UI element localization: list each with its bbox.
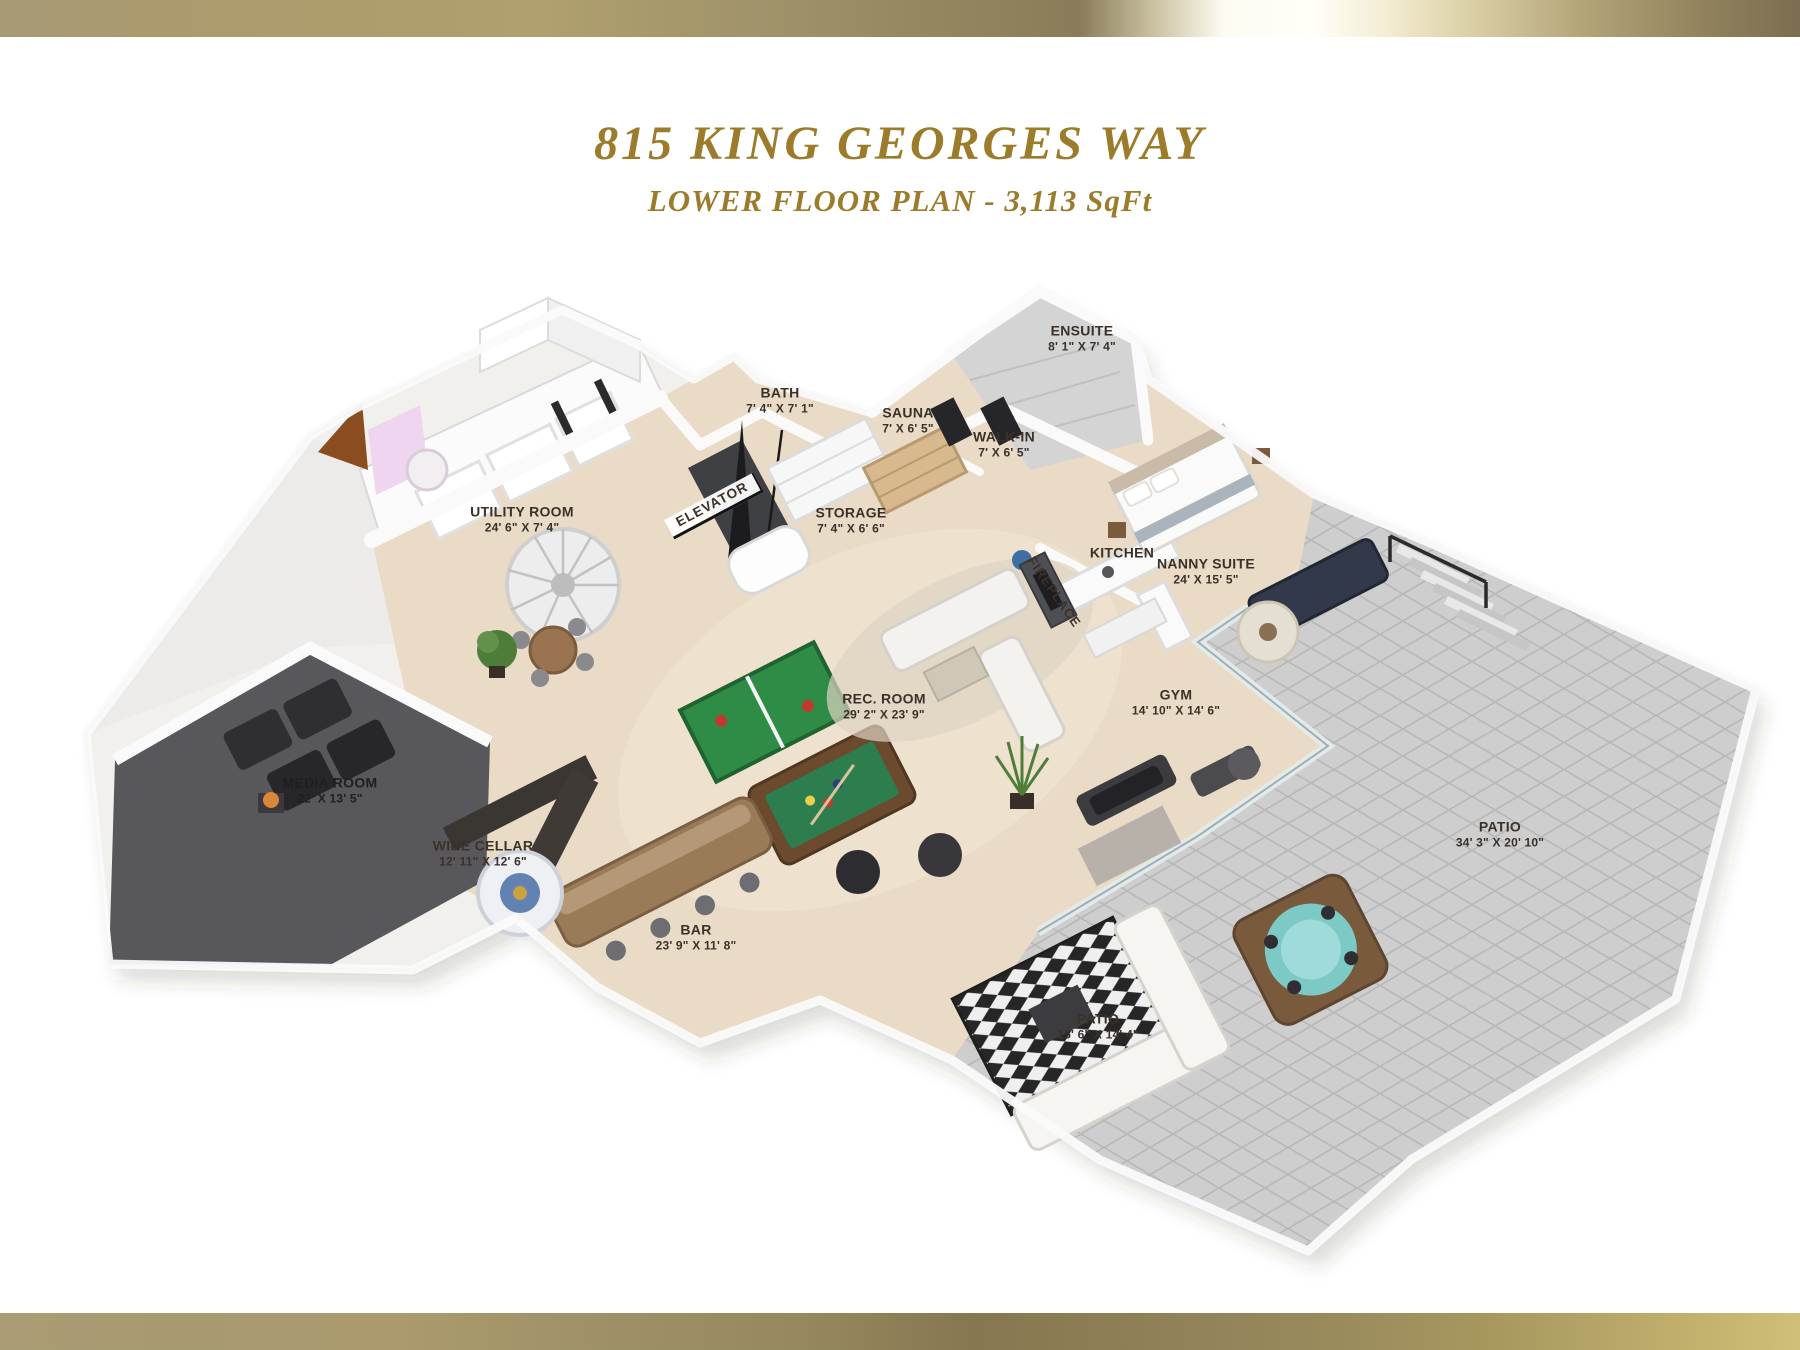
room-name: SAUNA bbox=[882, 404, 933, 420]
room-dims: 29' 2" X 23' 9" bbox=[842, 707, 926, 721]
room-name: PATIO bbox=[1479, 818, 1521, 834]
room-label-bath: BATH 7' 4" X 7' 1" bbox=[746, 384, 814, 415]
room-label-storage: STORAGE 7' 4" X 6' 6" bbox=[815, 504, 886, 535]
room-name: MEDIA ROOM bbox=[282, 774, 377, 790]
exercise-ball bbox=[1228, 748, 1260, 780]
room-label-rec-room: REC. ROOM 29' 2" X 23' 9" bbox=[842, 690, 926, 721]
room-label-patio-main: PATIO 34' 3" X 20' 10" bbox=[1456, 818, 1544, 849]
room-name: UTILITY ROOM bbox=[470, 503, 574, 519]
room-name: WALK-IN bbox=[973, 428, 1035, 444]
room-name: STORAGE bbox=[815, 504, 886, 520]
room-dims: 7' 4" X 7' 1" bbox=[746, 401, 814, 415]
room-name: BATH bbox=[760, 384, 799, 400]
room-name: WINE CELLAR bbox=[433, 837, 534, 853]
room-dims: 7' X 6' 5" bbox=[973, 445, 1035, 459]
room-dims: 24' 6" X 7' 4" bbox=[470, 520, 574, 534]
room-dims: 7' X 6' 5" bbox=[882, 421, 933, 435]
room-dims: 15' 6" X 14' 4" bbox=[1057, 1027, 1138, 1041]
side-table bbox=[1259, 623, 1277, 641]
floor-plan-page: 815 KING GEORGES WAY LOWER FLOOR PLAN - … bbox=[0, 0, 1800, 1350]
room-label-media-room: MEDIA ROOM 22' X 13' 5" bbox=[282, 774, 377, 805]
room-name: GYM bbox=[1160, 686, 1193, 702]
room-dims: 24' X 15' 5" bbox=[1157, 572, 1255, 586]
room-label-ensuite: ENSUITE 8' 1" X 7' 4" bbox=[1048, 322, 1116, 353]
room-label-patio-lower: PATIO 15' 6" X 14' 4" bbox=[1057, 1010, 1138, 1041]
room-dims: 23' 9" X 11' 8" bbox=[656, 938, 737, 952]
room-label-utility-room: UTILITY ROOM 24' 6" X 7' 4" bbox=[470, 503, 574, 534]
room-name: BAR bbox=[680, 921, 711, 937]
nightstand bbox=[1108, 522, 1126, 538]
lounge-chair bbox=[918, 833, 962, 877]
room-name: KITCHEN bbox=[1090, 545, 1154, 561]
room-label-kitchen: KITCHEN bbox=[1090, 545, 1154, 562]
room-label-gym: GYM 14' 10" X 14' 6" bbox=[1132, 686, 1220, 717]
room-label-walk-in: WALK-IN 7' X 6' 5" bbox=[973, 428, 1035, 459]
room-dims: 7' 4" X 6' 6" bbox=[815, 521, 886, 535]
room-label-sauna: SAUNA 7' X 6' 5" bbox=[882, 404, 933, 435]
room-name: REC. ROOM bbox=[842, 690, 926, 706]
room-name: PATIO bbox=[1077, 1010, 1119, 1026]
room-dims: 34' 3" X 20' 10" bbox=[1456, 835, 1544, 849]
room-label-wine-cellar: WINE CELLAR 12' 11" X 12' 6" bbox=[433, 837, 534, 868]
floor-plan-illustration bbox=[0, 0, 1800, 1350]
room-label-bar: BAR 23' 9" X 11' 8" bbox=[656, 921, 737, 952]
spiral-staircase bbox=[507, 529, 619, 641]
fire-table bbox=[258, 792, 284, 813]
room-dims: 14' 10" X 14' 6" bbox=[1132, 703, 1220, 717]
room-label-nanny-suite: NANNY SUITE 24' X 15' 5" bbox=[1157, 555, 1255, 586]
room-name: ENSUITE bbox=[1051, 322, 1114, 338]
lounge-chair bbox=[836, 850, 880, 894]
room-name: NANNY SUITE bbox=[1157, 555, 1255, 571]
room-dims: 22' X 13' 5" bbox=[282, 791, 377, 805]
room-dims: 8' 1" X 7' 4" bbox=[1048, 339, 1116, 353]
room-dims: 12' 11" X 12' 6" bbox=[433, 854, 534, 868]
